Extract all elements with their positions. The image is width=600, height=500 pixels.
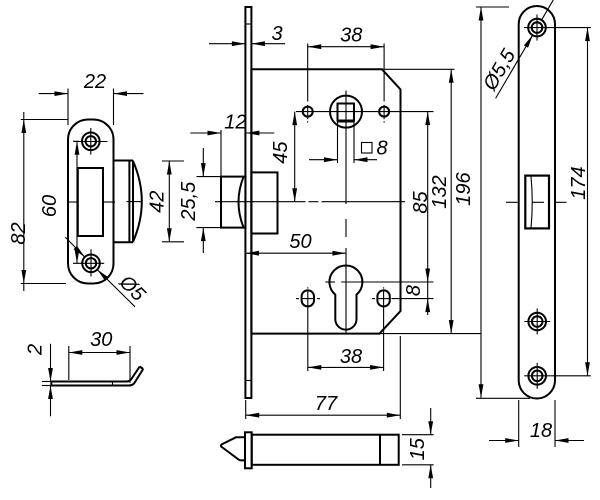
svg-text:77: 77 [315,393,338,415]
svg-text:3: 3 [271,23,282,45]
svg-text:8: 8 [376,138,387,160]
svg-text:8: 8 [403,285,425,296]
svg-text:2: 2 [25,344,47,356]
svg-text:196: 196 [453,171,475,205]
svg-text:22: 22 [83,71,106,93]
svg-text:45: 45 [270,141,292,164]
svg-text:38: 38 [340,346,362,368]
svg-text:82: 82 [8,222,30,244]
svg-text:174: 174 [568,166,590,199]
svg-text:18: 18 [530,420,552,442]
svg-text:132: 132 [429,175,451,208]
svg-text:30: 30 [90,329,112,351]
svg-text:25,5: 25,5 [178,181,200,222]
svg-text:60: 60 [39,195,61,217]
svg-text:50: 50 [289,231,311,253]
svg-text:42: 42 [147,191,169,213]
svg-text:15: 15 [407,437,429,460]
svg-text:38: 38 [340,25,362,47]
svg-text:12: 12 [224,111,246,133]
